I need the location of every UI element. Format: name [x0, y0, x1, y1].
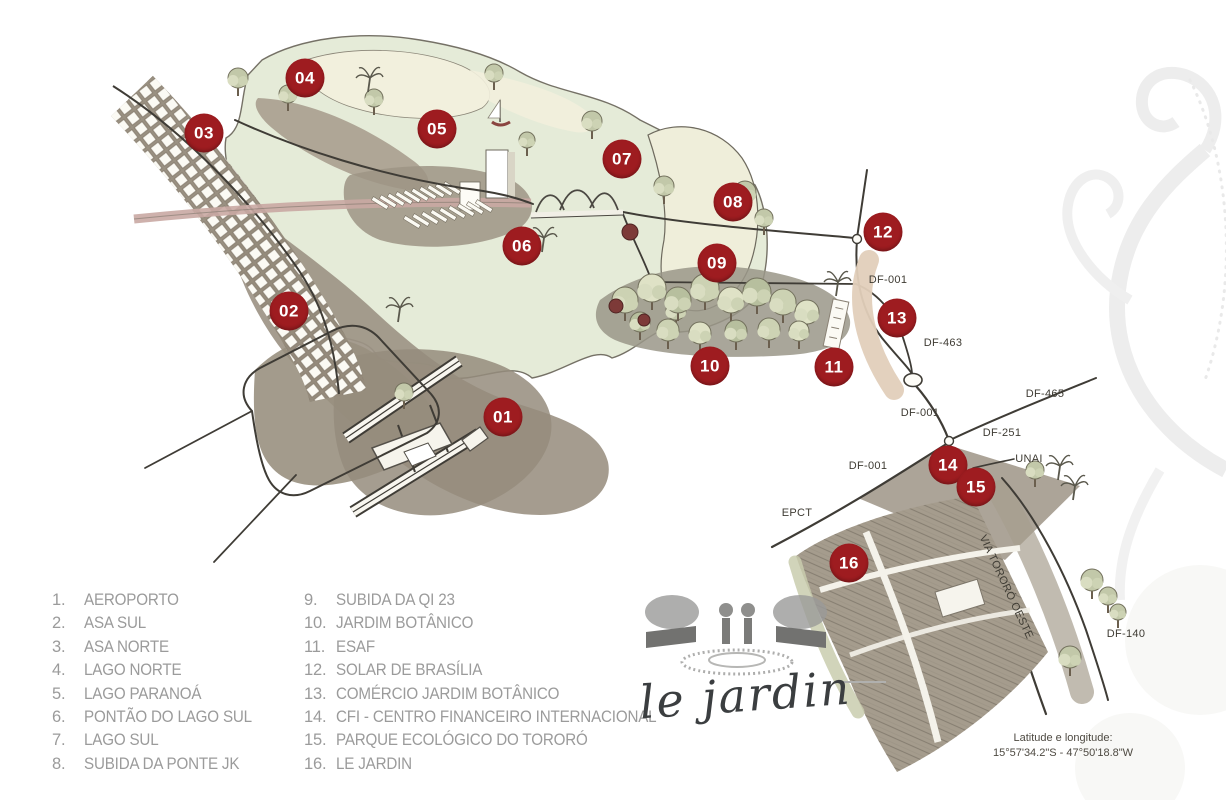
coordinates-value: 15°57'34.2"S - 47°50'18.8"W [963, 746, 1163, 761]
legend-item-label: AEROPORTO [84, 589, 179, 612]
road-label-df-251: DF-251 [983, 427, 1021, 439]
legend-item-label: JARDIM BOTÂNICO [336, 612, 473, 635]
road-label-unai: UNAI [1015, 453, 1042, 465]
legend-item-number: 10. [304, 612, 336, 635]
legend-item-number: 12. [304, 659, 336, 682]
road-label-epct: EPCT [782, 507, 813, 519]
map-marker-12: 12 [864, 213, 903, 252]
legend-item-label: ESAF [336, 636, 375, 659]
coordinates-caption: Latitude e longitude: [963, 731, 1163, 746]
legend-item-label: PONTÃO DO LAGO SUL [84, 706, 252, 729]
legend-item: 6.PONTÃO DO LAGO SUL [52, 706, 270, 729]
map-marker-04: 04 [286, 59, 325, 98]
legend-item-number: 6. [52, 706, 84, 729]
legend-item-number: 16. [304, 753, 336, 776]
legend-item-number: 5. [52, 683, 84, 706]
legend-item-number: 15. [304, 729, 336, 752]
legend-item-number: 13. [304, 683, 336, 706]
legend-item-label: LAGO PARANOÁ [84, 683, 201, 706]
legend-item-number: 8. [52, 753, 84, 776]
legend-item: 5.LAGO PARANOÁ [52, 683, 270, 706]
legend-item: 10.JARDIM BOTÂNICO [304, 612, 684, 635]
legend-item-number: 7. [52, 729, 84, 752]
map-marker-01: 01 [484, 398, 523, 437]
legend-item-label: SOLAR DE BRASÍLIA [336, 659, 482, 682]
legend-item-label: SUBIDA DA QI 23 [336, 589, 455, 612]
legend-item-label: SUBIDA DA PONTE JK [84, 753, 239, 776]
legend-item: 2.ASA SUL [52, 612, 270, 635]
legend-item-number: 4. [52, 659, 84, 682]
legend-item-label: LAGO SUL [84, 729, 158, 752]
legend-item: 7.LAGO SUL [52, 729, 270, 752]
legend-item: 11.ESAF [304, 636, 684, 659]
map-marker-13: 13 [878, 299, 917, 338]
legend: 1.AEROPORTO2.ASA SUL3.ASA NORTE4.LAGO NO… [52, 589, 684, 776]
legend-item-label: COMÉRCIO JARDIM BOTÂNICO [336, 683, 559, 706]
road-label-df-140: DF-140 [1107, 628, 1145, 640]
legend-item: 14.CFI - CENTRO FINANCEIRO INTERNACIONAL [304, 706, 684, 729]
map-marker-07: 07 [603, 140, 642, 179]
road-label-df-001: DF-001 [901, 407, 939, 419]
legend-item: 3.ASA NORTE [52, 636, 270, 659]
legend-item-number: 14. [304, 706, 336, 729]
legend-item-label: LAGO NORTE [84, 659, 181, 682]
legend-item-number: 9. [304, 589, 336, 612]
legend-item-label: PARQUE ECOLÓGICO DO TORORÓ [336, 729, 588, 752]
map-marker-16: 16 [830, 544, 869, 583]
road-label-df-463: DF-463 [924, 337, 962, 349]
legend-item: 8.SUBIDA DA PONTE JK [52, 753, 270, 776]
road-label-df-465: DF-465 [1026, 388, 1064, 400]
legend-item-label: ASA SUL [84, 612, 146, 635]
legend-column-1: 1.AEROPORTO2.ASA SUL3.ASA NORTE4.LAGO NO… [52, 589, 270, 776]
map-marker-11: 11 [815, 348, 854, 387]
road-label-df-001: DF-001 [849, 460, 887, 472]
map-marker-10: 10 [691, 347, 730, 386]
legend-item-number: 11. [304, 636, 336, 659]
legend-item-label: ASA NORTE [84, 636, 169, 659]
legend-item-label: LE JARDIN [336, 753, 412, 776]
legend-item: 15.PARQUE ECOLÓGICO DO TORORÓ [304, 729, 684, 752]
road-label-df-001: DF-001 [869, 274, 907, 286]
legend-item: 16.LE JARDIN [304, 753, 684, 776]
legend-item-number: 2. [52, 612, 84, 635]
map-marker-08: 08 [714, 183, 753, 222]
le-jardin-map-poster: 1.AEROPORTO2.ASA SUL3.ASA NORTE4.LAGO NO… [0, 0, 1226, 800]
legend-item: 9.SUBIDA DA QI 23 [304, 589, 684, 612]
map-marker-02: 02 [270, 292, 309, 331]
legend-item: 1.AEROPORTO [52, 589, 270, 612]
map-marker-15: 15 [957, 468, 996, 507]
map-marker-03: 03 [185, 114, 224, 153]
map-marker-09: 09 [698, 244, 737, 283]
legend-item-label: CFI - CENTRO FINANCEIRO INTERNACIONAL [336, 706, 656, 729]
coordinates: Latitude e longitude: 15°57'34.2"S - 47°… [963, 731, 1163, 761]
legend-item: 4.LAGO NORTE [52, 659, 270, 682]
legend-item-number: 3. [52, 636, 84, 659]
map-marker-06: 06 [503, 227, 542, 266]
map-marker-05: 05 [418, 110, 457, 149]
legend-item-number: 1. [52, 589, 84, 612]
